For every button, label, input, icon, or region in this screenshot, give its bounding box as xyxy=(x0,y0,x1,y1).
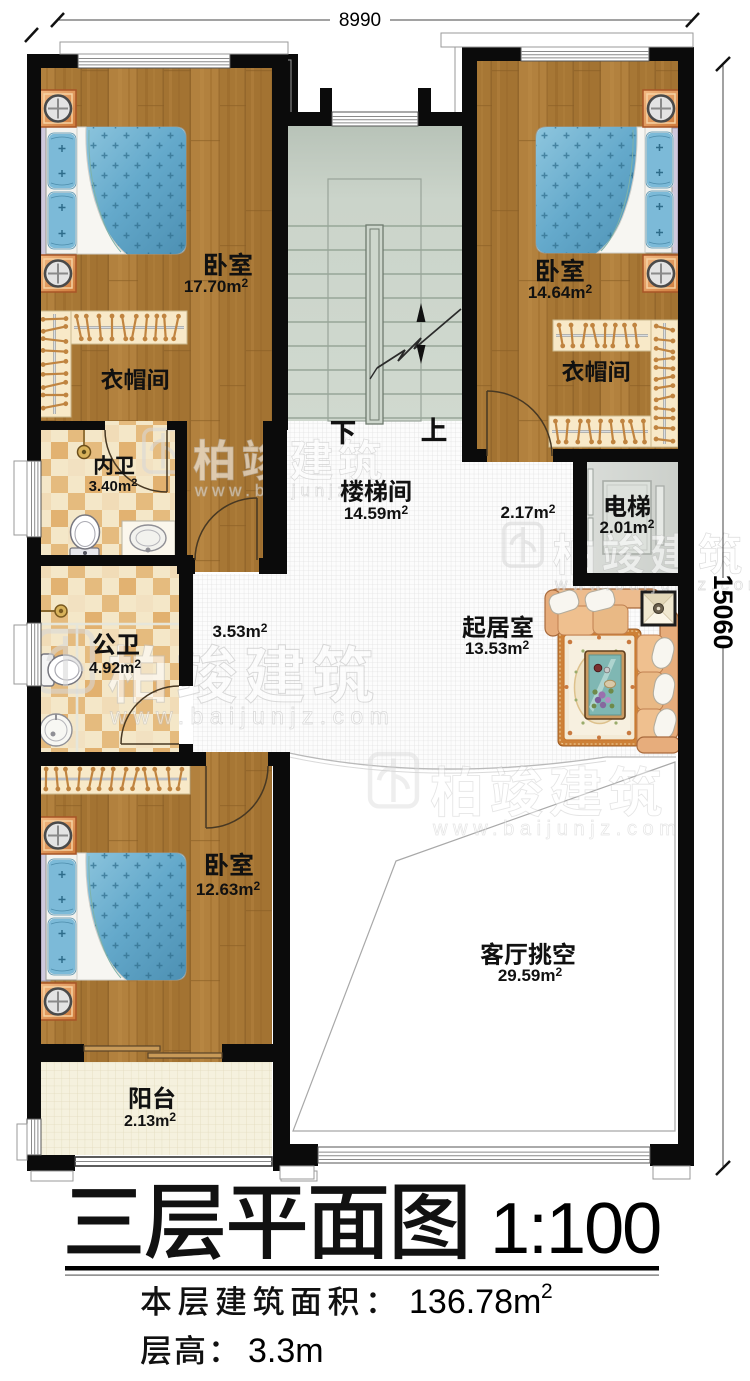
svg-text:2.01m2: 2.01m2 xyxy=(600,517,655,537)
svg-text:1:100: 1:100 xyxy=(490,1189,660,1269)
svg-text:www.baijunjz.com: www.baijunjz.com xyxy=(109,703,395,729)
svg-text:2.17m2: 2.17m2 xyxy=(501,502,556,522)
svg-text:14.64m2: 14.64m2 xyxy=(528,282,593,302)
svg-text:17.70m2: 17.70m2 xyxy=(184,276,249,296)
svg-text:www.baijunjz.com: www.baijunjz.com xyxy=(432,818,682,840)
svg-text:4.92m2: 4.92m2 xyxy=(89,657,141,677)
svg-text:136.78m: 136.78m xyxy=(409,1283,541,1321)
svg-text:15060: 15060 xyxy=(708,574,738,649)
svg-text:3.3m: 3.3m xyxy=(248,1332,324,1370)
svg-text:13.53m2: 13.53m2 xyxy=(465,638,530,658)
svg-text:12.63m2: 12.63m2 xyxy=(196,879,261,899)
svg-text:2.13m2: 2.13m2 xyxy=(124,1110,176,1130)
svg-text:2: 2 xyxy=(541,1280,553,1303)
svg-text:29.59m2: 29.59m2 xyxy=(498,965,563,985)
svg-text:3.40m2: 3.40m2 xyxy=(89,477,138,495)
svg-text:14.59m2: 14.59m2 xyxy=(344,503,409,523)
svg-text:3.53m2: 3.53m2 xyxy=(213,621,268,641)
svg-text:8990: 8990 xyxy=(339,10,381,31)
